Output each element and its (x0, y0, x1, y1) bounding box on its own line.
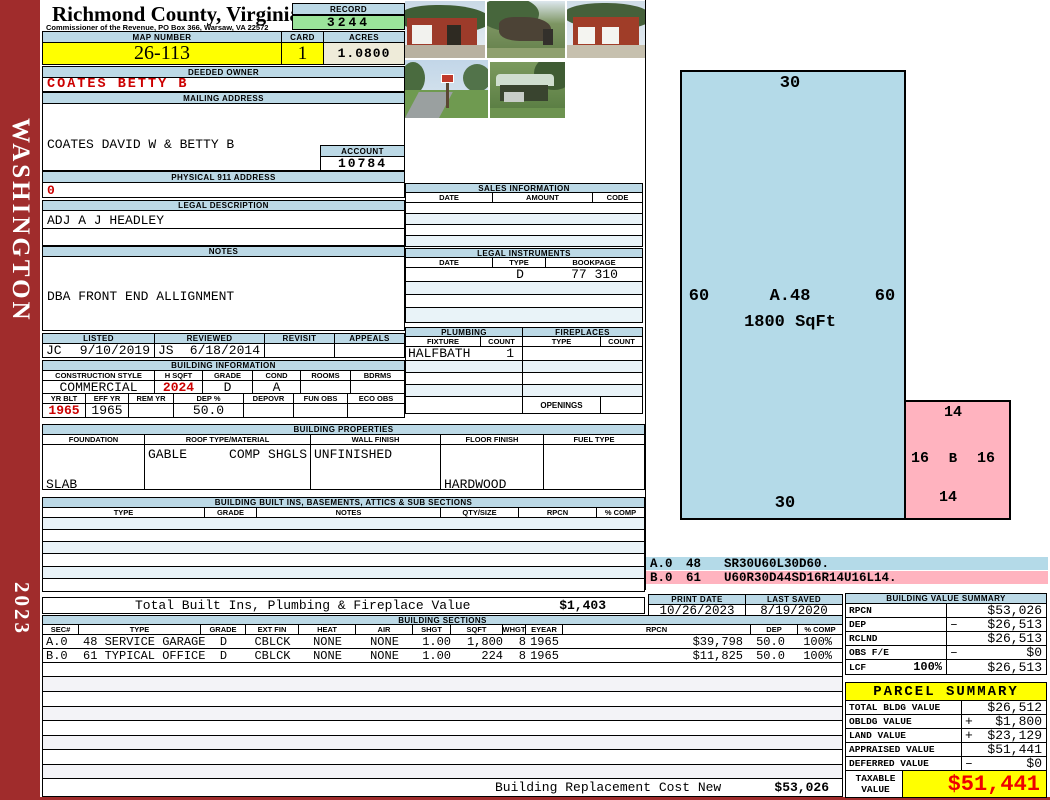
legend-a-trace: SR30U60L30D60. (724, 557, 829, 571)
foundation-line-1: SLAB (46, 477, 144, 493)
row-b-comp: 100% (790, 649, 832, 663)
row-b-type: 61 TYPICAL OFFICE (79, 649, 201, 663)
empty-row (42, 735, 843, 750)
replacement-cost-label: Building Replacement Cost New (495, 780, 721, 795)
row-a-sec: A.0 (43, 635, 79, 649)
bvs-obs-sign: – (950, 645, 958, 660)
photo-ground (405, 45, 485, 58)
parcel-deferred-sign: – (965, 756, 973, 771)
cond-value: A (252, 380, 301, 394)
parcel-land-amount: $23,129 (987, 728, 1042, 743)
replacement-cost-value: $53,026 (774, 780, 829, 795)
section-row-a: A.0 48 SERVICE GARAGE D CBLCK NONE NONE … (42, 634, 843, 649)
card-value: 1 (281, 42, 324, 65)
total-built-ins-label: Total Built Ins, Plumbing & Fireplace Va… (135, 598, 470, 613)
bvs-lcf-label: LCF 100% (845, 659, 947, 675)
property-photo-1[interactable] (405, 1, 485, 58)
listed-value: JC9/10/2019 (42, 343, 155, 358)
year-label: 2023 (9, 582, 34, 636)
photo-apron (567, 45, 645, 58)
acres-value: 1.0800 (323, 42, 405, 65)
row-a-extfin: CBLCK (246, 635, 299, 649)
bvs-dep-sign: – (950, 617, 958, 632)
depovr-value (243, 403, 294, 418)
plumbing-count: 1 (506, 346, 514, 361)
sketch-a-top-dim: 30 (770, 74, 810, 93)
empty-row (42, 691, 843, 707)
instrument-row: D 77 310 (405, 267, 643, 282)
bvs-rpcn-value: $53,026 (946, 603, 1047, 618)
row-a-comp: 100% (790, 635, 832, 649)
photo-sign-pole (446, 80, 449, 108)
parcel-total-bldg-label: TOTAL BLDG VALUE (845, 700, 962, 715)
bdrms-value (350, 380, 405, 394)
sketch-b-left-dim: 16 (906, 450, 934, 467)
bvs-lcf-text: LCF (849, 662, 866, 673)
plumbing-fixture: HALFBATH (406, 346, 470, 361)
empty-row (42, 662, 843, 677)
record-value: 3244 (292, 15, 405, 30)
legend-b-code: 61 (686, 571, 724, 585)
row-b-dep: 50.0 (751, 649, 790, 663)
row-a-dep: 50.0 (751, 635, 790, 649)
photo-garage-door (412, 25, 432, 44)
row-a-whgt: 8 (503, 635, 526, 649)
photo-debris (543, 29, 553, 45)
bvs-rpcn-amount: $53,026 (987, 603, 1042, 618)
sketch-b-label: B (938, 451, 968, 467)
replacement-cost-row: Building Replacement Cost New $53,026 (42, 778, 843, 797)
bvs-obs-label: OBS F/E (845, 645, 947, 660)
remyr-value (128, 403, 174, 418)
roof-value: GABLE COMP SHGLS (144, 444, 311, 490)
taxable-value-label: TAXABLE VALUE (845, 770, 903, 798)
notes-line-1: DBA FRONT END ALLIGNMENT (47, 289, 404, 305)
bvs-rclnd-label: RCLND (845, 631, 947, 646)
sketch-a-left-dim: 60 (682, 287, 716, 306)
legend-a-code: 48 (686, 557, 724, 571)
photo-grass (487, 48, 565, 58)
empty-row (405, 235, 643, 247)
notes-box: DBA FRONT END ALLIGNMENT PER HEARING 1/4… (42, 256, 405, 331)
funobs-value (293, 403, 348, 418)
parcel-deferred-value: –$0 (961, 756, 1047, 771)
property-record-card: WASHINGTON 2023 Richmond County, Virgini… (0, 0, 1050, 800)
row-b-extfin: CBLCK (246, 649, 299, 663)
photo-grass (490, 108, 565, 118)
parcel-summary-header: PARCEL SUMMARY (845, 682, 1047, 701)
property-photo-4[interactable] (405, 60, 488, 118)
bvs-rclnd-amount: $26,513 (987, 631, 1042, 646)
bvs-lcf-amount: $26,513 (987, 660, 1042, 675)
sketch-a-right-dim: 60 (868, 287, 902, 306)
bvs-dep-label: DEP (845, 617, 947, 632)
photo-sign (441, 74, 454, 83)
photo-tree-right (463, 64, 488, 92)
row-a-type: 48 SERVICE GARAGE (79, 635, 201, 649)
legend-a-sec: A.0 (650, 557, 686, 571)
reviewed-by: JS (158, 343, 174, 358)
bvs-obs-value: –$0 (946, 645, 1047, 660)
physical-address-value: 0 (42, 182, 405, 198)
grade-value: D (202, 380, 253, 394)
empty-row (405, 396, 523, 414)
empty-row (42, 764, 843, 779)
parcel-appraised-amount: $51,441 (987, 742, 1042, 757)
row-b-heat: NONE (299, 649, 356, 663)
yrblt-value: 1965 (42, 403, 86, 418)
effyr-value: 1965 (85, 403, 129, 418)
sketch-b-bottom-dim: 14 (930, 489, 966, 506)
instrument-bookpage: 77 310 (547, 267, 642, 282)
empty-row (405, 281, 643, 295)
sketch-b-right-dim: 16 (972, 450, 1000, 467)
bvs-rpcn-label: RPCN (845, 603, 947, 618)
record-header: RECORD (292, 3, 405, 15)
parcel-total-bldg-amount: $26,512 (987, 700, 1042, 715)
sketch-a-label: A.48 (758, 287, 822, 306)
total-built-ins-row: Total Built Ins, Plumbing & Fireplace Va… (42, 597, 645, 614)
row-a-heat: NONE (299, 635, 356, 649)
parcel-obldg-value: +$1,800 (961, 714, 1047, 729)
total-built-ins-value: $1,403 (559, 598, 606, 613)
parcel-appraised-label: APPRAISED VALUE (845, 742, 962, 757)
ecoobs-value (347, 403, 405, 418)
row-b-sqft: 224 (451, 649, 503, 663)
roof-material: COMP SHGLS (229, 447, 307, 462)
row-a-air: NONE (356, 635, 413, 649)
parcel-obldg-sign: + (965, 714, 973, 729)
taxable-value-amount: $51,441 (902, 770, 1047, 798)
row-a-rpcn: $39,798 (563, 635, 751, 649)
parcel-deferred-label: DEFERRED VALUE (845, 756, 962, 771)
row-b-sec: B.0 (43, 649, 79, 663)
floor-line-1: HARDWOOD (444, 477, 543, 493)
property-photo-5[interactable] (490, 62, 565, 118)
reviewed-value: JS6/18/2014 (154, 343, 265, 358)
parcel-total-bldg-value: $26,512 (961, 700, 1047, 715)
listed-by: JC (46, 343, 62, 358)
district-label: WASHINGTON (6, 118, 34, 323)
bvs-lcf-pct: 100% (913, 660, 942, 674)
section-row-b: B.0 61 TYPICAL OFFICE D CBLCK NONE NONE … (42, 648, 843, 663)
empty-row (522, 346, 643, 361)
sketch-a-sqft: 1800 SqFt (718, 313, 862, 332)
empty-row (42, 706, 843, 721)
sketch-legend-b: B.0 61 U60R30D44SD16R14U16L14. (646, 570, 1048, 584)
parcel-obldg-label: OBLDG VALUE (845, 714, 962, 729)
sketch-legend-a: A.0 48 SR30U60L30D60. (646, 556, 1048, 570)
wall-finish-value: UNFINISHED (310, 444, 441, 490)
row-a-sqft: 1,800 (451, 635, 503, 649)
reviewed-date: 6/18/2014 (190, 343, 260, 358)
bvs-dep-value: –$26,513 (946, 617, 1047, 632)
account-value: 10784 (320, 156, 405, 171)
row-a-shgt: 1.00 (413, 635, 451, 649)
row-a-grade: D (201, 635, 246, 649)
property-photo-3[interactable] (567, 1, 645, 58)
plumbing-row: HALFBATH 1 (405, 346, 523, 361)
row-b-shgt: 1.00 (413, 649, 451, 663)
empty-row (42, 749, 843, 765)
bvs-obs-amount: $0 (1026, 645, 1042, 660)
row-b-eyear: 1965 (526, 649, 563, 663)
map-number-value: 26-113 (42, 42, 282, 65)
floor-finish-value: HARDWOOD VINYL (440, 444, 544, 490)
parcel-land-label: LAND VALUE (845, 728, 962, 743)
revisit-value (264, 343, 335, 358)
photo-garage-door-2 (602, 27, 619, 44)
photo-stored-item (504, 92, 524, 102)
deppct-value: 50.0 (173, 403, 244, 418)
empty-row (405, 307, 643, 323)
empty-row (42, 720, 843, 736)
appeals-value (334, 343, 405, 358)
bvs-lcf-value: $26,513 (946, 659, 1047, 675)
parcel-obldg-amount: $1,800 (995, 714, 1042, 729)
rooms-value (300, 380, 351, 394)
photo-doorway (447, 25, 461, 45)
legal-description-divider (42, 228, 405, 229)
foundation-value: SLAB CONCRETE (42, 444, 145, 490)
legend-b-trace: U60R30D44SD16R14U16L14. (724, 571, 897, 585)
row-b-whgt: 8 (503, 649, 526, 663)
photo-garage-door-1 (578, 27, 595, 44)
fuel-type-value (543, 444, 645, 490)
deeded-owner-value: COATES BETTY B (42, 77, 405, 92)
legend-b-sec: B.0 (650, 571, 686, 585)
bvs-rclnd-value: $26,513 (946, 631, 1047, 646)
row-b-grade: D (201, 649, 246, 663)
parcel-land-sign: + (965, 728, 973, 743)
openings-value (600, 396, 643, 414)
instrument-type: D (493, 267, 547, 282)
parcel-land-value: +$23,129 (961, 728, 1047, 743)
sketch-a-bottom-dim: 30 (765, 494, 805, 513)
empty-row (405, 294, 643, 308)
parcel-appraised-value: $51,441 (961, 742, 1047, 757)
parcel-deferred-amount: $0 (1026, 756, 1042, 771)
row-b-rpcn: $11,825 (563, 649, 751, 663)
empty-row (42, 578, 645, 592)
property-photo-2[interactable] (487, 1, 565, 58)
roof-type: GABLE (148, 447, 187, 462)
listed-date: 9/10/2019 (80, 343, 150, 358)
construction-style-value: COMMERCIAL (42, 380, 155, 394)
row-b-air: NONE (356, 649, 413, 663)
sketch-b-top-dim: 14 (935, 404, 971, 421)
openings-label: OPENINGS (522, 396, 601, 414)
empty-row (42, 676, 843, 692)
empty-row (42, 553, 645, 567)
bvs-dep-amount: $26,513 (987, 617, 1042, 632)
hsqft-value: 2024 (154, 380, 203, 394)
row-a-eyear: 1965 (526, 635, 563, 649)
